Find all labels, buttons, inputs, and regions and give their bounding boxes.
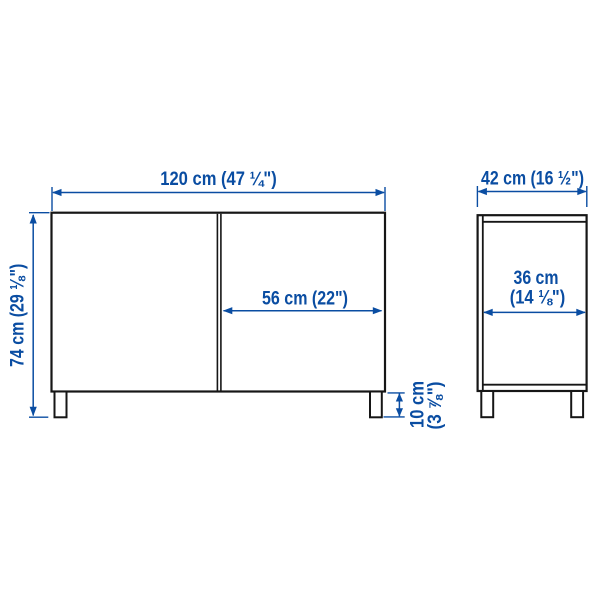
- svg-text:36 cm: 36 cm: [514, 268, 559, 289]
- svg-text:120 cm (47 ¼"): 120 cm (47 ¼"): [160, 169, 277, 190]
- svg-text:(3 ⅞"): (3 ⅞"): [425, 382, 446, 430]
- svg-text:74 cm (29 ⅛"): 74 cm (29 ⅛"): [8, 264, 29, 367]
- svg-text:(14 ⅛"): (14 ⅛"): [510, 288, 566, 309]
- svg-text:42 cm (16 ½"): 42 cm (16 ½"): [481, 169, 584, 190]
- svg-text:56 cm (22"): 56 cm (22"): [262, 289, 348, 310]
